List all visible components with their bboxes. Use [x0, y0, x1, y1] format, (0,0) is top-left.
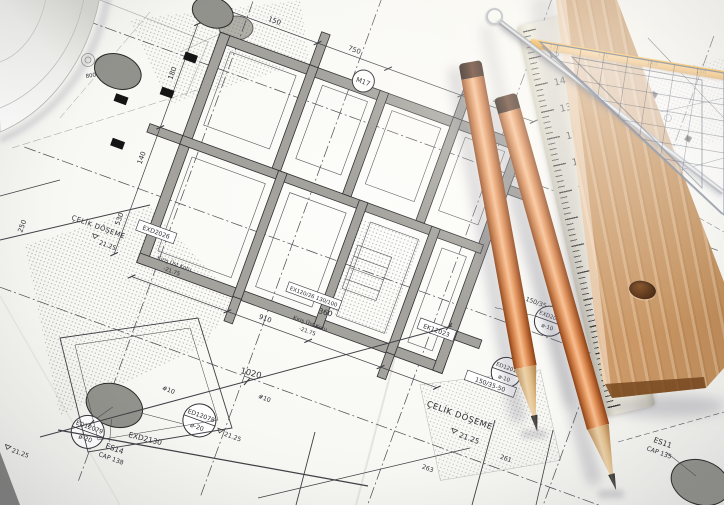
blueprint-photo: 800-118.5/84 [0, 0, 724, 505]
set-square [0, 0, 724, 505]
